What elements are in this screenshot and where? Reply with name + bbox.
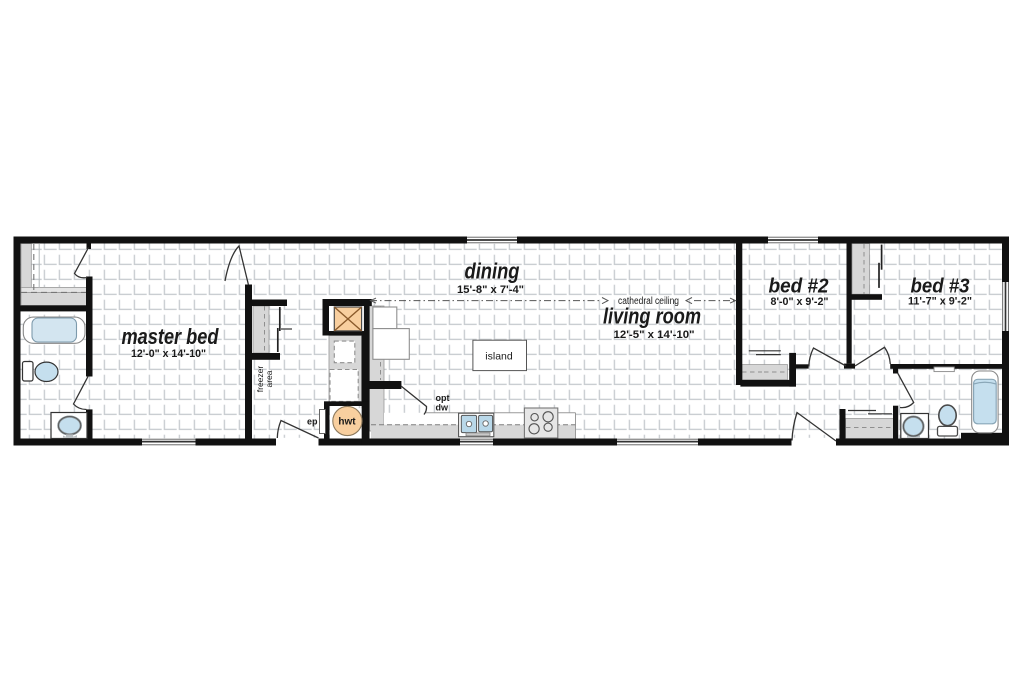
- svg-text:master bed: master bed: [122, 324, 219, 349]
- svg-text:bed #2: bed #2: [769, 276, 829, 298]
- svg-text:12'-0" x 14'-10": 12'-0" x 14'-10": [131, 348, 206, 360]
- svg-text:opt: opt: [436, 393, 450, 403]
- svg-text:8'-0" x 9'-2": 8'-0" x 9'-2": [771, 296, 829, 308]
- svg-text:15'-8" x 7'-4": 15'-8" x 7'-4": [457, 284, 524, 296]
- svg-text:12'-5" x 14'-10": 12'-5" x 14'-10": [614, 329, 695, 341]
- svg-text:island: island: [485, 351, 513, 363]
- svg-text:cathedral ceiling: cathedral ceiling: [618, 296, 679, 307]
- svg-text:11'-7" x 9'-2": 11'-7" x 9'-2": [908, 296, 972, 308]
- svg-text:hwt: hwt: [338, 417, 356, 428]
- svg-text:living room: living room: [603, 304, 701, 329]
- svg-text:ep: ep: [307, 417, 318, 427]
- svg-text:dw: dw: [436, 403, 449, 413]
- svg-text:dining: dining: [465, 259, 520, 284]
- svg-text:area: area: [264, 370, 274, 387]
- svg-text:bed #3: bed #3: [911, 276, 970, 298]
